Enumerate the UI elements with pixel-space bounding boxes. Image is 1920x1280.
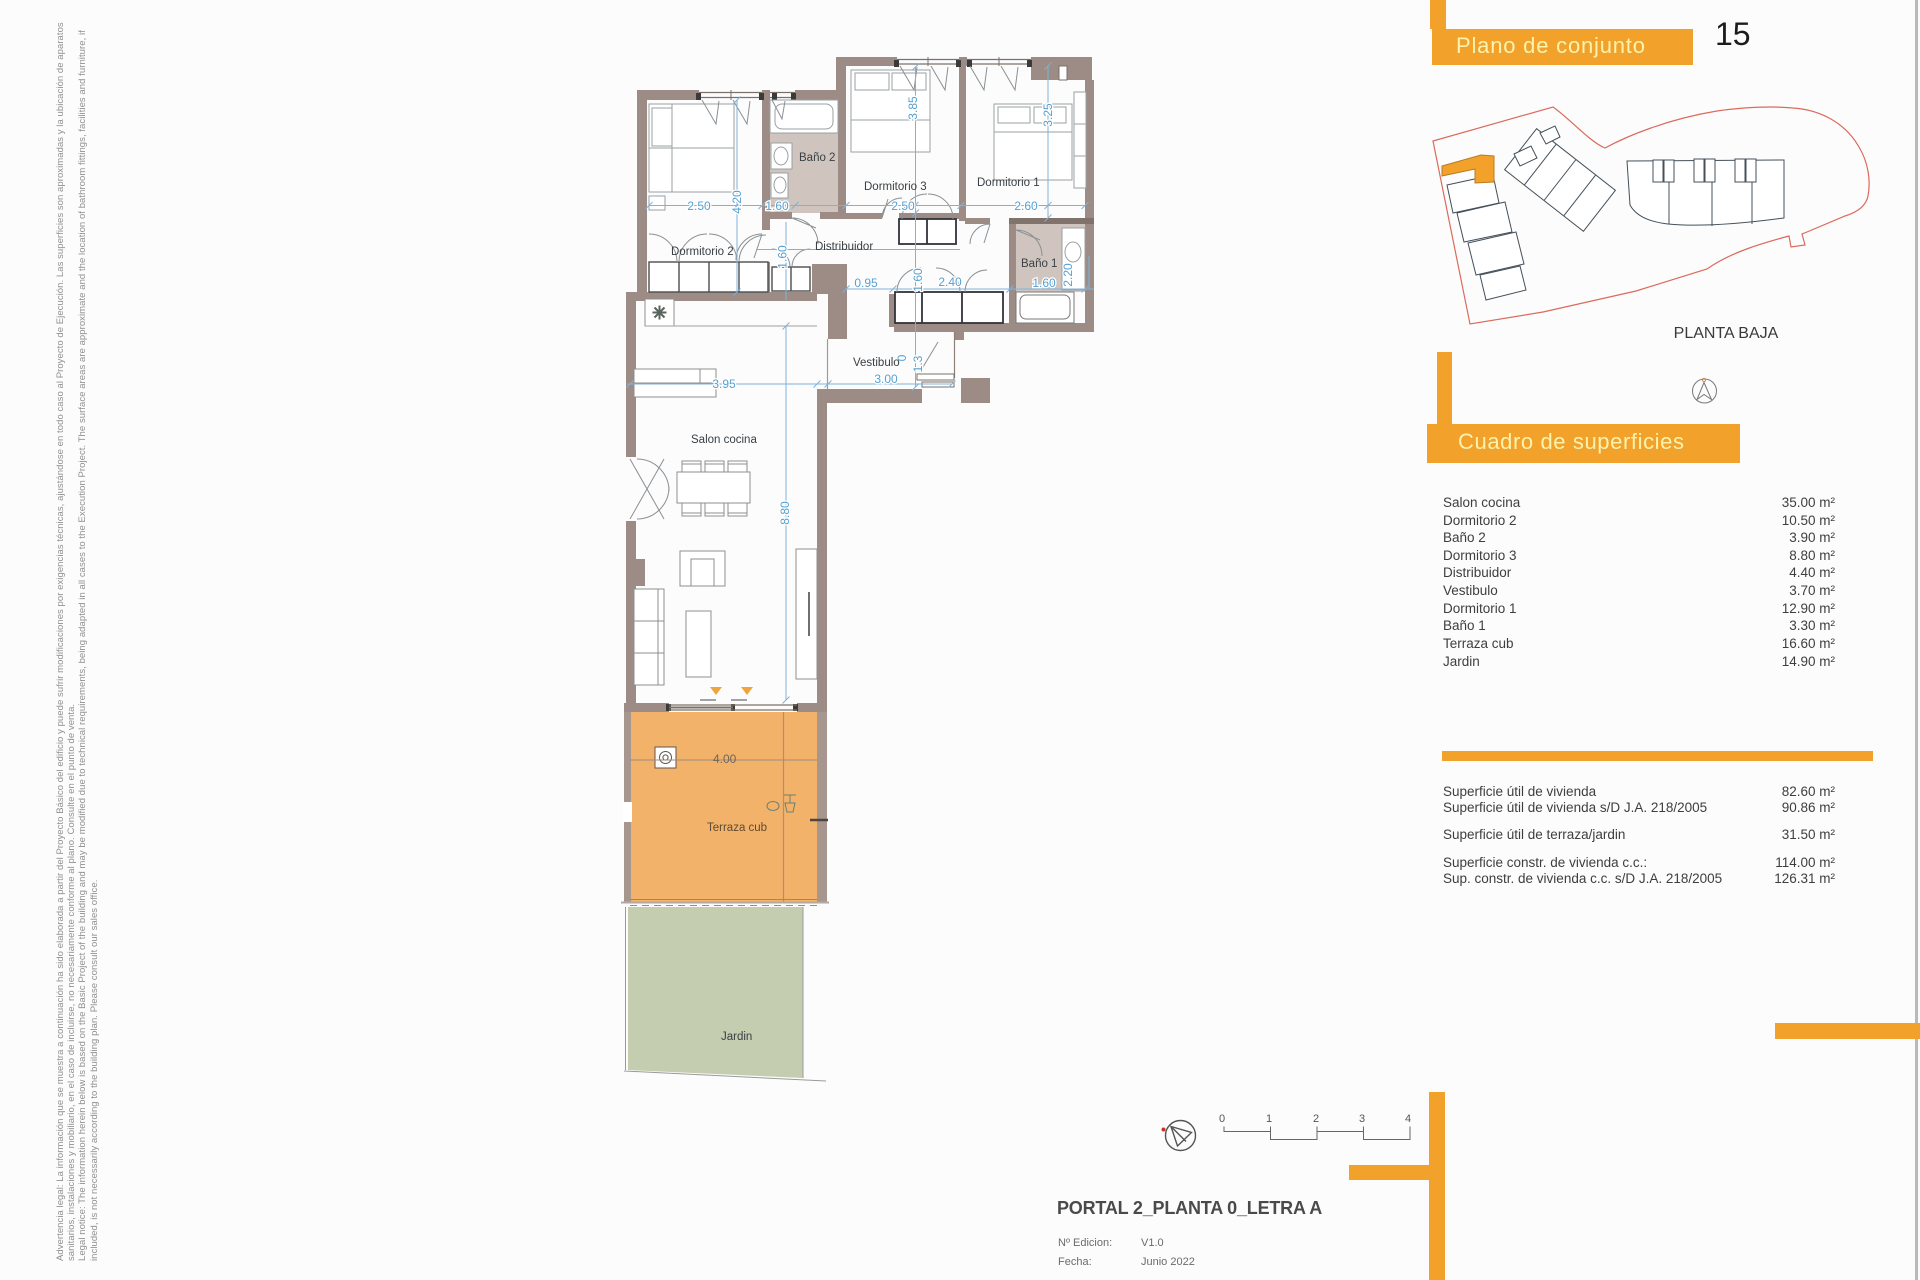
svg-text:Dormitorio 1: Dormitorio 1 bbox=[977, 177, 1040, 189]
svg-text:1.60: 1.60 bbox=[1032, 276, 1056, 290]
svg-text:1.3: 1.3 bbox=[911, 355, 925, 372]
svg-text:2.50: 2.50 bbox=[891, 199, 915, 213]
svg-text:Baño 1: Baño 1 bbox=[1021, 258, 1057, 270]
svg-text:1.60: 1.60 bbox=[765, 199, 789, 213]
svg-text:2.60: 2.60 bbox=[1014, 199, 1038, 213]
svg-text:8.80: 8.80 bbox=[778, 501, 792, 525]
svg-text:1.60: 1.60 bbox=[776, 245, 790, 269]
svg-text:Dormitorio 2: Dormitorio 2 bbox=[671, 246, 734, 258]
svg-text:2.50: 2.50 bbox=[687, 199, 711, 213]
svg-text:0.95: 0.95 bbox=[854, 276, 878, 290]
svg-text:Vestibulo: Vestibulo bbox=[853, 357, 900, 369]
svg-text:4.20: 4.20 bbox=[730, 190, 744, 214]
svg-text:2.20: 2.20 bbox=[1061, 263, 1075, 287]
svg-text:1.60: 1.60 bbox=[911, 268, 925, 292]
svg-text:Baño 2: Baño 2 bbox=[799, 152, 835, 164]
svg-text:Distribuidor: Distribuidor bbox=[815, 241, 873, 253]
svg-text:4.00: 4.00 bbox=[713, 752, 737, 766]
svg-text:2.40: 2.40 bbox=[938, 275, 962, 289]
svg-text:Jardin: Jardin bbox=[721, 1031, 752, 1043]
svg-text:Salon cocina: Salon cocina bbox=[691, 434, 757, 446]
svg-text:3.25: 3.25 bbox=[1041, 103, 1055, 127]
svg-text:3.00: 3.00 bbox=[874, 372, 898, 386]
svg-text:Terraza cub: Terraza cub bbox=[707, 822, 767, 834]
svg-text:Dormitorio 3: Dormitorio 3 bbox=[864, 181, 927, 193]
svg-text:3.95: 3.95 bbox=[712, 377, 736, 391]
svg-text:3.85: 3.85 bbox=[906, 96, 920, 120]
